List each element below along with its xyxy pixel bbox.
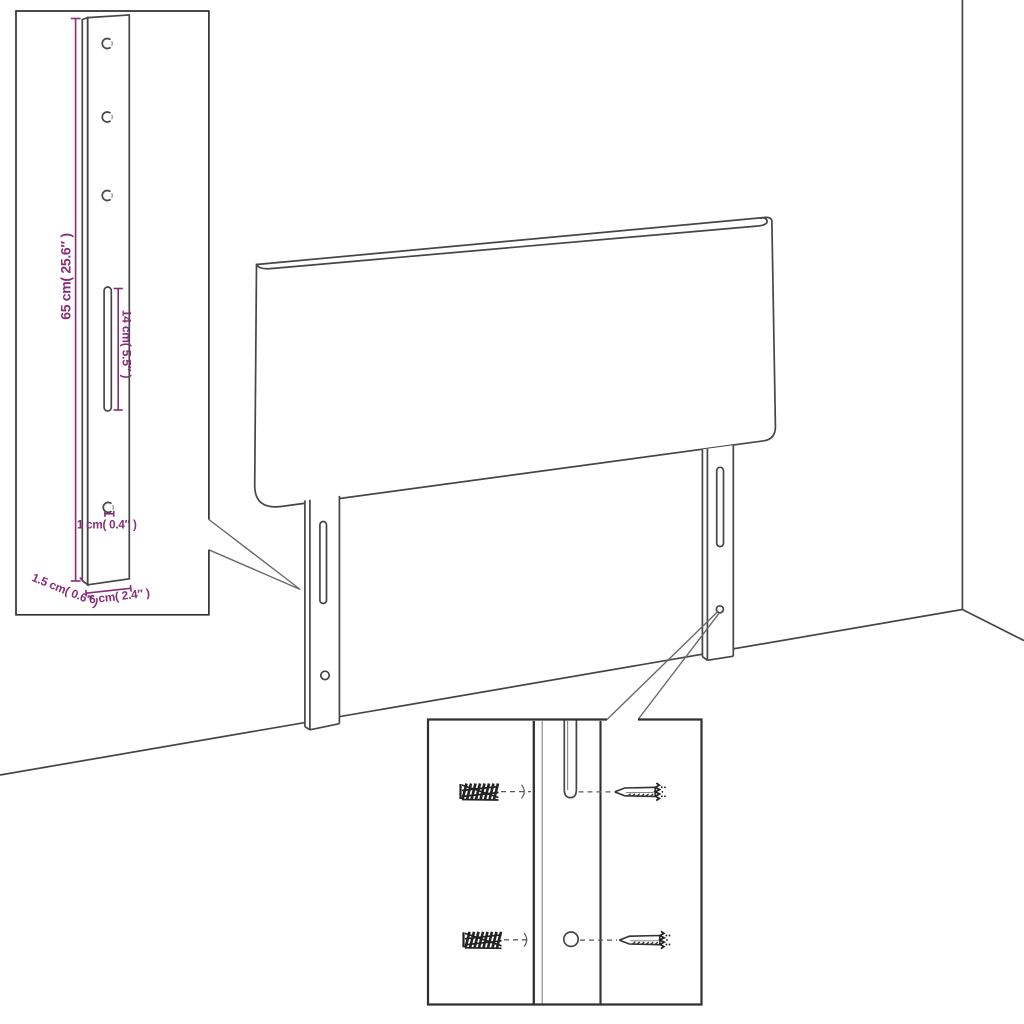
svg-text:1 cm( 0.4″ ): 1 cm( 0.4″ ) (77, 519, 137, 532)
svg-text:65 cm( 25.6″ ): 65 cm( 25.6″ ) (58, 233, 74, 320)
svg-text:14 cm( 5.5″ ): 14 cm( 5.5″ ) (120, 310, 134, 379)
